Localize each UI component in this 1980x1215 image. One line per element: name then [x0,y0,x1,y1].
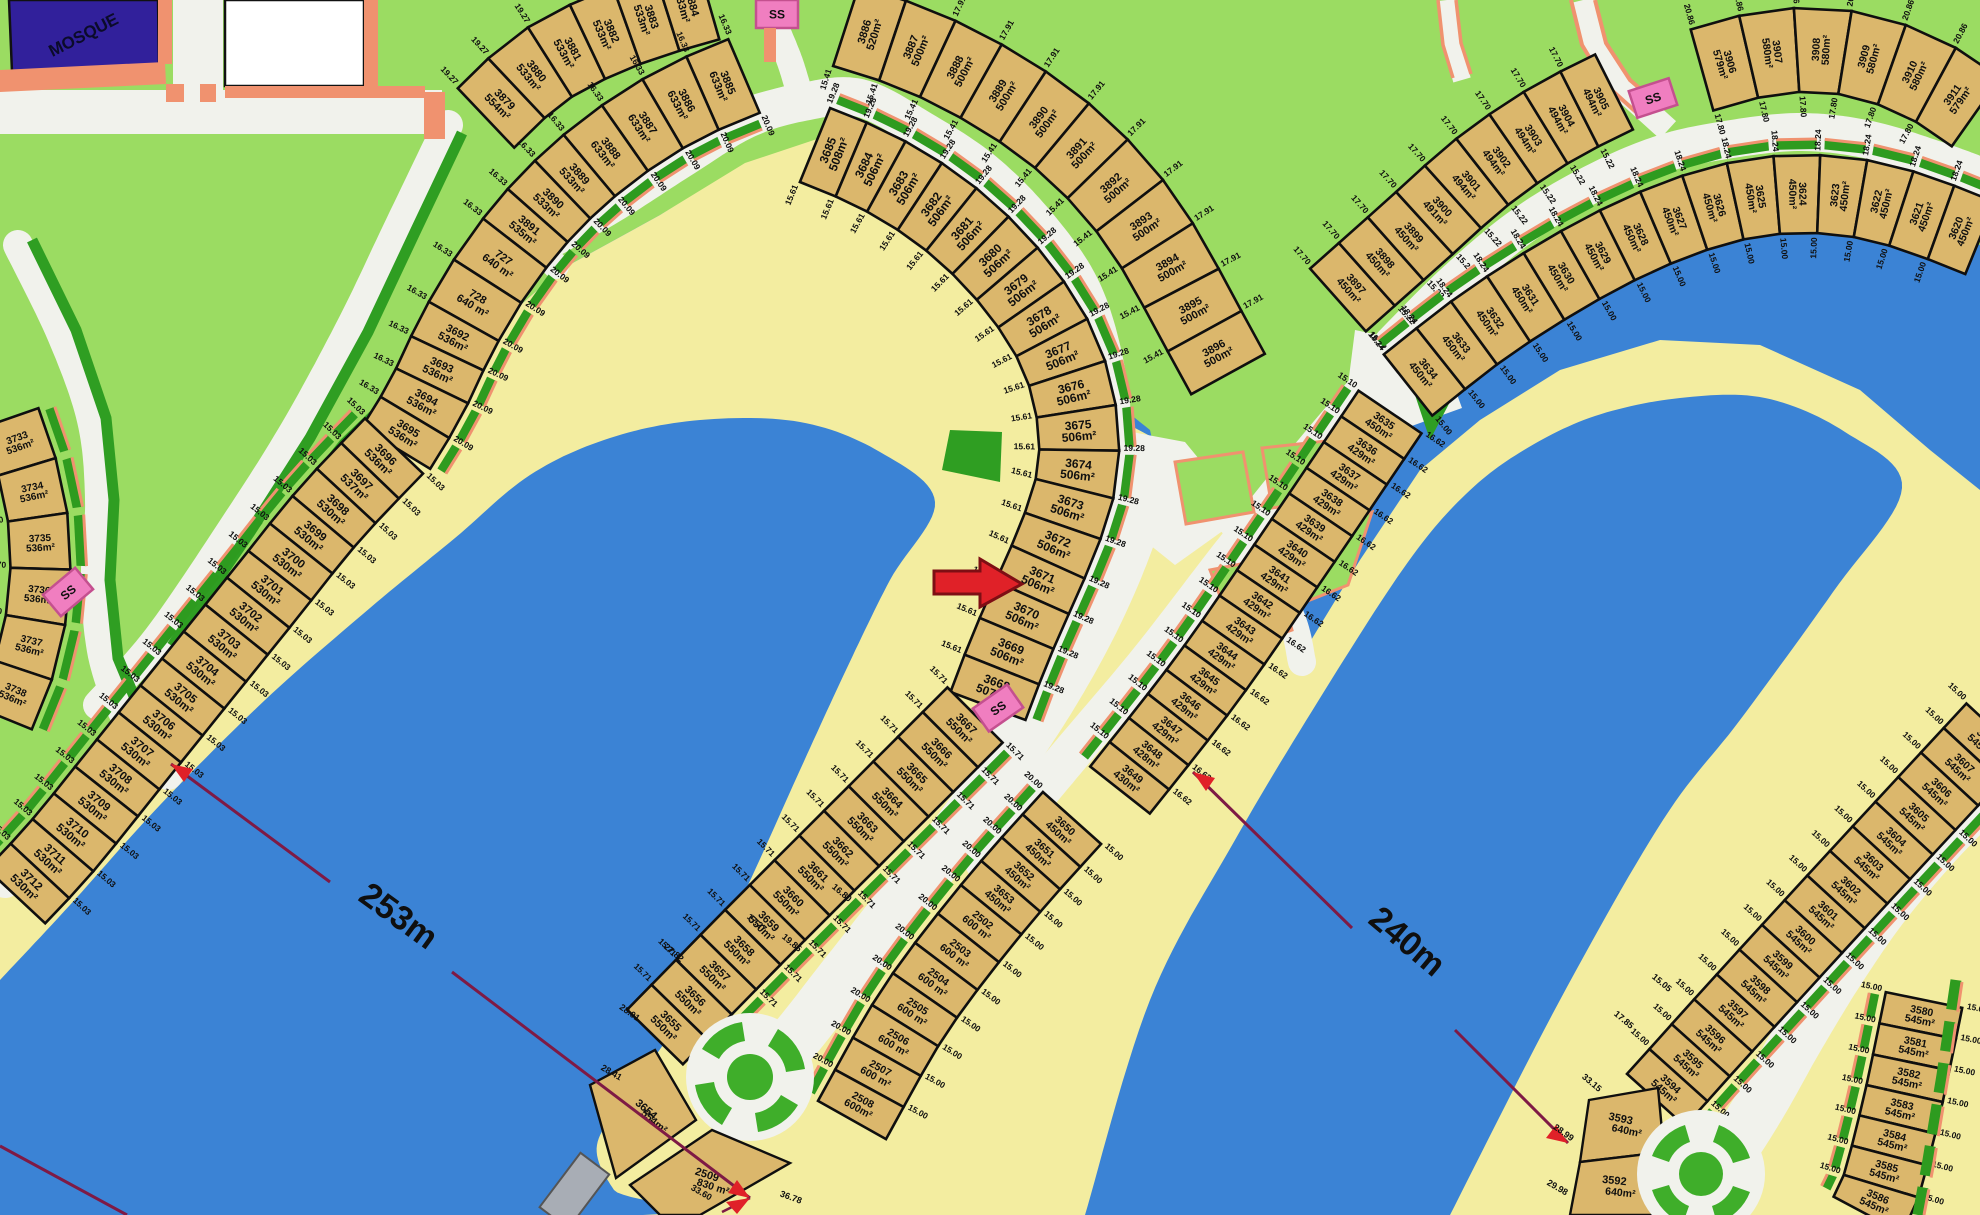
svg-text:15.00: 15.00 [1778,238,1790,260]
svg-text:19.28: 19.28 [1124,443,1146,453]
svg-text:17.80: 17.80 [1798,96,1809,118]
svg-text:18.24: 18.24 [1769,130,1781,152]
svg-text:3674506m²: 3674506m² [1059,455,1096,484]
svg-text:15.61: 15.61 [1014,441,1036,451]
svg-text:18.24: 18.24 [1812,129,1823,151]
svg-text:3623450m²: 3623450m² [1828,179,1853,212]
svg-text:3908580m²: 3908580m² [1810,34,1834,66]
svg-text:18.70: 18.70 [0,559,7,570]
svg-text:3624450m²: 3624450m² [1786,179,1808,210]
svg-text:SS: SS [769,8,785,22]
svg-text:15.00: 15.00 [1808,237,1819,259]
